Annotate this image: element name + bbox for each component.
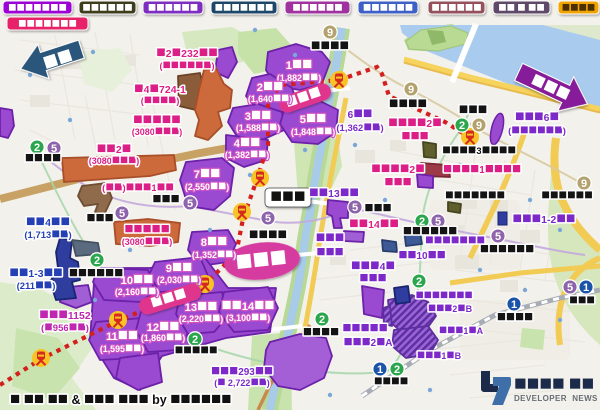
svg-text:2: 2 xyxy=(459,120,465,132)
svg-text:■■■■: ■■■■ xyxy=(311,37,349,54)
svg-text:■■■■: ■■■■ xyxy=(303,323,339,340)
svg-text:■■ ■ ■■: ■■ ■ ■■ xyxy=(498,0,545,15)
svg-text:■■■■: ■■■■ xyxy=(497,308,533,325)
svg-text:5: 5 xyxy=(119,208,125,220)
svg-text:■■■■■■■: ■■■■■■■ xyxy=(445,187,505,203)
svg-text:5: 5 xyxy=(187,198,193,210)
svg-text:■■■■: ■■■■ xyxy=(374,373,408,389)
svg-text:■■■■■■■: ■■■■■■■ xyxy=(18,15,77,31)
svg-text:■■■■■■■: ■■■■■■■ xyxy=(215,0,274,15)
svg-text:■■■■: ■■■■ xyxy=(389,95,427,112)
svg-text:■■■■: ■■■■ xyxy=(249,226,287,243)
svg-text:■■■■■■■: ■■■■■■■ xyxy=(8,0,67,15)
svg-text:■■■■■■: ■■■■■■ xyxy=(148,0,198,15)
svg-text:■■■■■■: ■■■■■■ xyxy=(69,264,123,281)
svg-text:■■■■■■: ■■■■■■ xyxy=(292,0,342,15)
svg-text:(■■■■): (■■■■) xyxy=(141,92,180,107)
svg-text:■■■■■■: ■■■■■■ xyxy=(82,0,132,15)
svg-text:DEVELOPER NEWS: DEVELOPER NEWS xyxy=(514,394,598,403)
svg-text:■■■: ■■■ xyxy=(384,173,411,190)
svg-text:■■■2■A: ■■■2■A xyxy=(343,333,392,350)
svg-text:■■■: ■■■ xyxy=(359,269,386,286)
svg-text:■■■: ■■■ xyxy=(401,127,428,144)
svg-text:■■■: ■■■ xyxy=(459,101,488,118)
svg-text:■■■: ■■■ xyxy=(364,199,391,216)
svg-text:■■■■: ■■■■ xyxy=(25,149,61,166)
svg-text:5: 5 xyxy=(352,202,358,214)
svg-text:■■■■■■: ■■■■■■ xyxy=(431,0,481,15)
svg-text:■■■■ ■■: ■■■■ ■■ xyxy=(514,372,594,395)
svg-text:■■■: ■■■ xyxy=(86,209,113,226)
svg-text:■■■: ■■■ xyxy=(569,292,595,308)
svg-text:■■■■■■: ■■■■■■ xyxy=(480,240,534,257)
svg-text:(■■■■■■): (■■■■■■) xyxy=(160,57,215,72)
svg-text:■■■: ■■■ xyxy=(152,190,179,207)
svg-text:■■■■■■: ■■■■■■ xyxy=(403,222,457,239)
svg-text:■■■: ■■■ xyxy=(270,185,305,207)
svg-text:■■■: ■■■ xyxy=(234,240,289,277)
svg-text:■■■■: ■■■■ xyxy=(562,0,596,15)
svg-text:■■■■■■: ■■■■■■ xyxy=(541,187,592,203)
svg-text:9: 9 xyxy=(476,120,482,132)
svg-text:■ ■■ ■■ & ■■■ ■■■ by ■■■■■■: ■ ■■ ■■ & ■■■ ■■■ by ■■■■■■ xyxy=(10,389,231,408)
svg-text:5: 5 xyxy=(265,213,271,225)
svg-text:■■■■■■: ■■■■■■ xyxy=(363,0,413,15)
svg-text:■■■■■: ■■■■■ xyxy=(175,342,218,358)
svg-text:(■■■■■■): (■■■■■■) xyxy=(508,122,566,138)
svg-text:■■■: ■■■ xyxy=(316,243,343,260)
